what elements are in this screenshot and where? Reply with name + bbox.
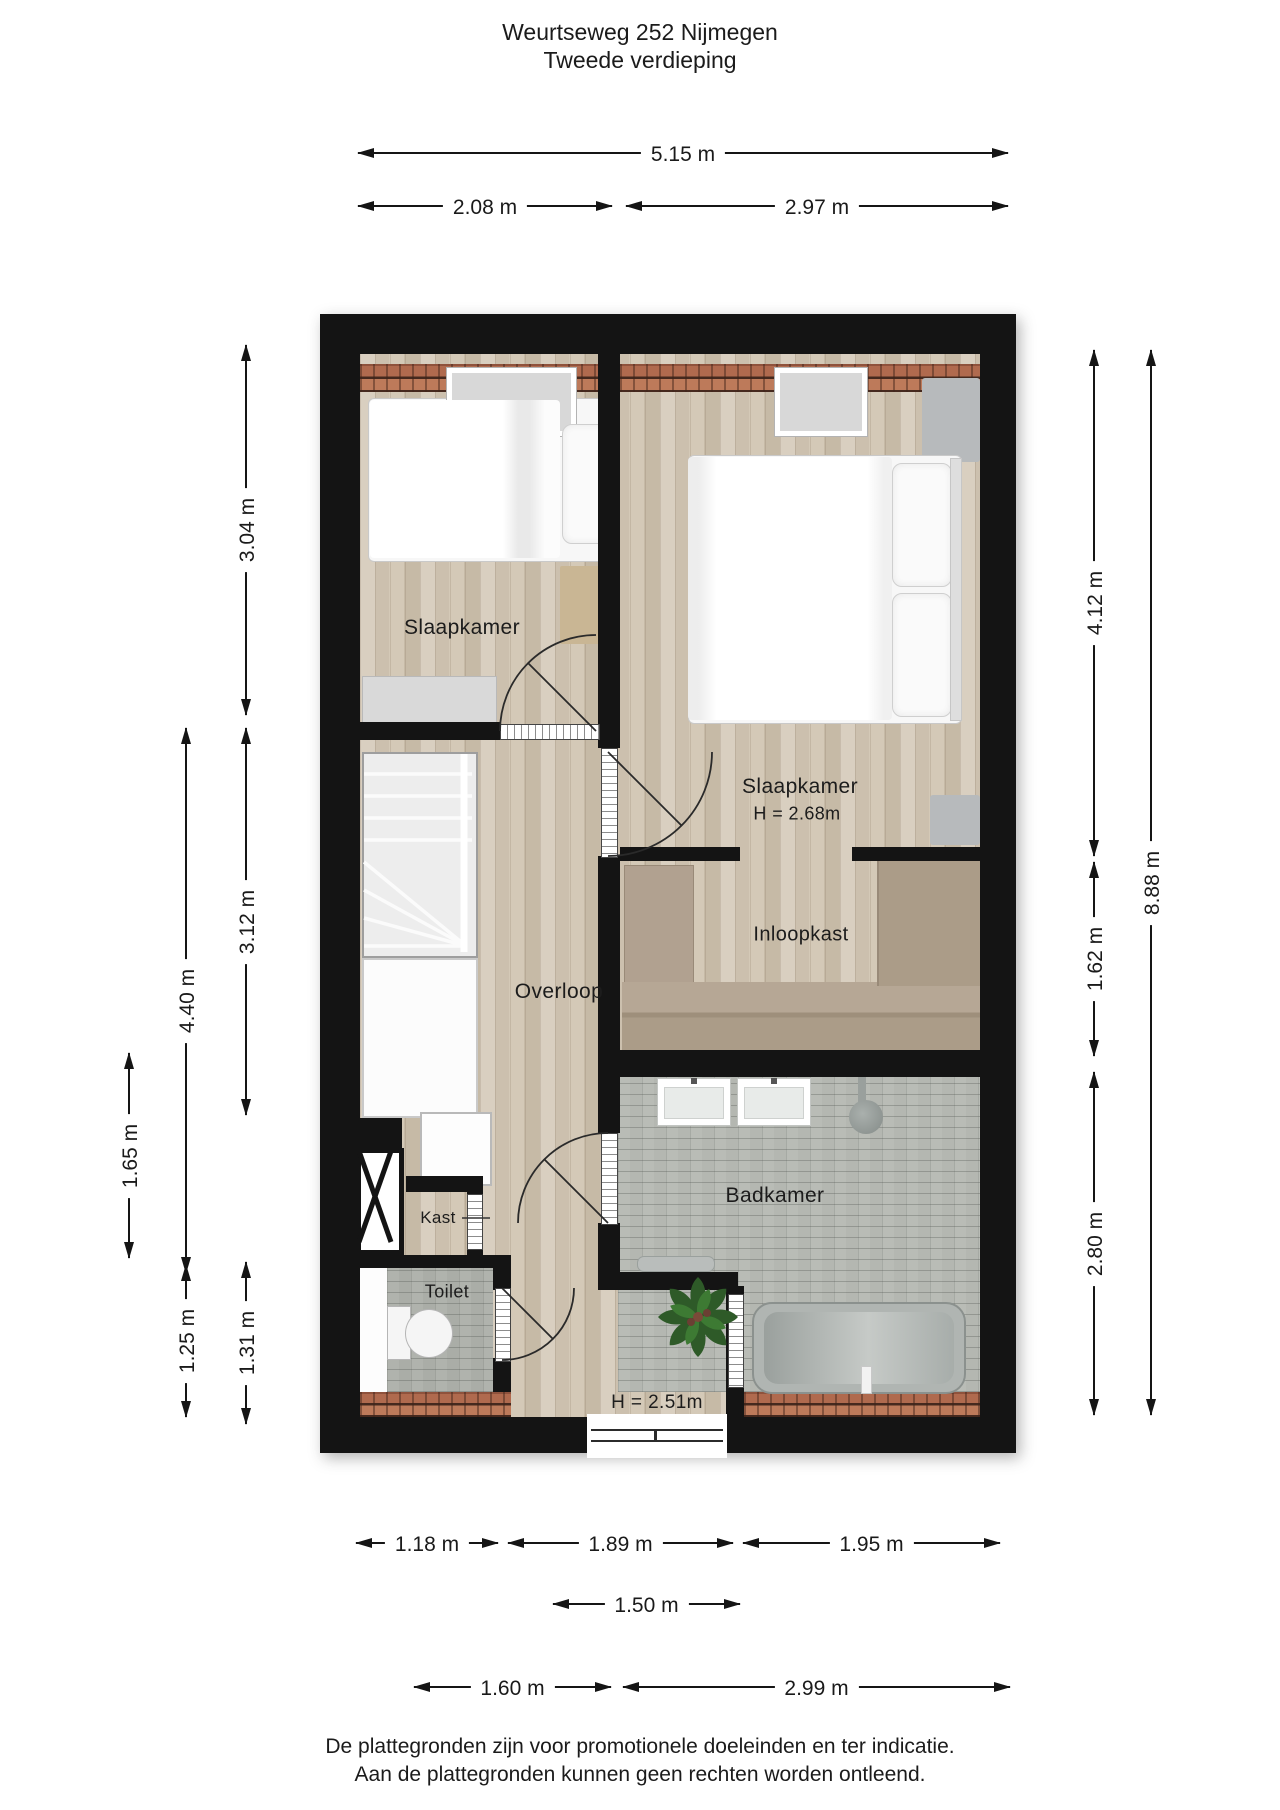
wall-toilet-right-lower xyxy=(493,1358,511,1392)
interior-window-bathroom xyxy=(728,1294,744,1388)
room-label-badkamer: Badkamer xyxy=(726,1184,825,1208)
room-label-kast: Kast xyxy=(420,1208,456,1228)
stairs xyxy=(362,752,478,958)
door-bedroom-left xyxy=(500,724,600,740)
room-label-inloopkast: Inloopkast xyxy=(753,924,848,947)
address-line: Weurtseweg 252 Nijmegen xyxy=(0,18,1280,46)
room-label-toilet: Toilet xyxy=(425,1282,469,1303)
wardrobe-column xyxy=(877,861,982,986)
floorplan: SlaapkamerSlaapkamerH = 2.68mOverloopInl… xyxy=(0,0,1280,1810)
outer-wall-left xyxy=(320,314,360,1453)
outer-wall-top xyxy=(320,314,1016,354)
cabinet xyxy=(420,1112,492,1186)
single-bed-duvet xyxy=(370,400,560,558)
outer-wall-right xyxy=(980,314,1016,1453)
roof-window-right xyxy=(775,368,867,436)
dimension-bottom-189: 1.89 m xyxy=(508,1542,733,1544)
dimension-bottom-160: 1.60 m xyxy=(414,1686,611,1688)
wall-closet-top-left xyxy=(620,847,740,861)
facade-window-line-2 xyxy=(591,1440,723,1442)
wall-bedroom-divider-upper xyxy=(598,354,620,748)
roof-tiles-bottom-right xyxy=(744,1392,980,1417)
dimension-right-162: 1.62 m xyxy=(1093,862,1095,1056)
sink-1-tap xyxy=(691,1078,697,1084)
towel-rail xyxy=(637,1256,715,1272)
dimension-left-165: 1.65 m xyxy=(128,1053,130,1258)
wall-bathroom-top xyxy=(598,1050,980,1077)
facade-window-line-1 xyxy=(591,1429,723,1431)
wall-bedroom-left-bottom xyxy=(360,722,500,740)
dimension-left-304: 3.04 m xyxy=(245,345,247,715)
bathtub-faucet xyxy=(861,1366,872,1394)
door-bedroom-right xyxy=(601,748,618,858)
double-bed-headboard xyxy=(950,458,962,721)
dimension-right-412: 4.12 m xyxy=(1093,350,1095,856)
dimension-bottom-118: 1.18 m xyxy=(356,1542,498,1544)
bedside-mat-bottom xyxy=(930,795,980,845)
room-label-slaapkamer-right: Slaapkamer xyxy=(742,775,858,799)
door-kast xyxy=(467,1194,483,1250)
dimension-width-total: 5.15 m xyxy=(358,152,1008,154)
page-title: Weurtseweg 252 Nijmegen Tweede verdiepin… xyxy=(0,18,1280,74)
dimension-width-left: 2.08 m xyxy=(358,205,612,207)
room-label-ceiling-height: H = 2.51m xyxy=(611,1392,703,1414)
dimension-left-125: 1.25 m xyxy=(185,1265,187,1417)
roof-tiles-bottom-left xyxy=(360,1392,511,1417)
wall-hall-bathroom-jog xyxy=(598,1272,738,1290)
toilet-bowl xyxy=(405,1309,453,1358)
dimension-left-131: 1.31 m xyxy=(245,1262,247,1424)
door-bathroom xyxy=(601,1133,618,1225)
outer-wall-bottom-right xyxy=(727,1417,1016,1453)
wall-shaft-top xyxy=(356,1118,402,1148)
dimension-bottom-195: 1.95 m xyxy=(743,1542,1000,1544)
bedside-mat-top xyxy=(922,378,980,462)
toilet-nook xyxy=(360,1268,387,1392)
double-bed-pillow-2 xyxy=(892,593,952,717)
dimension-bottom-150: 1.50 m xyxy=(553,1603,740,1605)
dimension-bottom-299: 2.99 m xyxy=(623,1686,1010,1688)
dimension-left-440: 4.40 m xyxy=(185,728,187,1273)
dresser xyxy=(362,676,497,724)
sink-2 xyxy=(737,1078,811,1126)
sink-1-basin xyxy=(664,1087,724,1119)
disclaimer-line-2: Aan de plattegronden kunnen geen rechten… xyxy=(0,1761,1280,1789)
dimension-width-right: 2.97 m xyxy=(626,205,1008,207)
stairwell-void xyxy=(362,958,478,1118)
disclaimer-line-1: De plattegronden zijn voor promotionele … xyxy=(0,1733,1280,1761)
wall-toilet-top xyxy=(356,1255,511,1268)
dimension-right-280: 2.80 m xyxy=(1093,1072,1095,1415)
door-toilet xyxy=(495,1288,511,1362)
shaft xyxy=(356,1148,404,1255)
shower-head-icon xyxy=(849,1100,883,1134)
bathtub-basin xyxy=(764,1312,954,1384)
room-label-slaapkamer-right-height: H = 2.68m xyxy=(753,804,840,825)
dimension-left-312: 3.12 m xyxy=(245,728,247,1115)
room-label-slaapkamer-left: Slaapkamer xyxy=(404,616,520,640)
sink-2-basin xyxy=(744,1087,804,1119)
facade-window-mullion xyxy=(654,1429,657,1442)
double-bed-duvet xyxy=(688,457,892,720)
room-label-overloop: Overloop xyxy=(515,980,603,1004)
floor-line: Tweede verdieping xyxy=(0,46,1280,74)
outer-wall-bottom-left xyxy=(320,1417,587,1453)
wardrobe-band xyxy=(622,982,980,1050)
bathtub xyxy=(752,1302,966,1394)
sink-1 xyxy=(657,1078,731,1126)
floorplan-page: Weurtseweg 252 Nijmegen Tweede verdiepin… xyxy=(0,0,1280,1810)
wall-closet-top-right xyxy=(852,847,980,861)
walk-in-closet-dresser xyxy=(624,865,694,984)
sink-2-tap xyxy=(771,1078,777,1084)
facade-window xyxy=(587,1414,727,1458)
double-bed-pillow-1 xyxy=(892,463,952,587)
wall-toilet-right-upper xyxy=(493,1268,511,1290)
disclaimer: De plattegronden zijn voor promotionele … xyxy=(0,1733,1280,1789)
dimension-right-888: 8.88 m xyxy=(1150,350,1152,1415)
